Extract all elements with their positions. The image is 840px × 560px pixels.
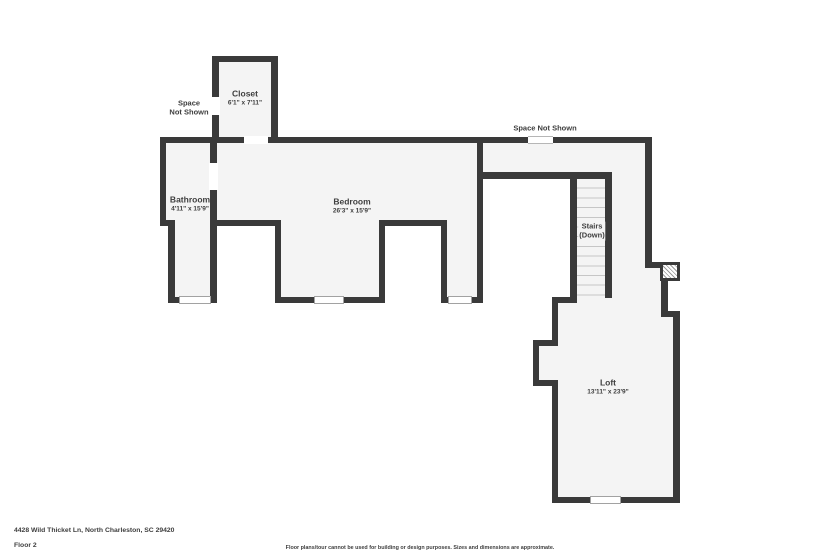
bathroom-alcove-floor	[168, 220, 216, 303]
address-text: 4428 Wild Thicket Ln, North Charleston, …	[14, 527, 174, 534]
wall	[477, 143, 483, 303]
wall	[379, 220, 447, 226]
wall	[441, 220, 447, 303]
stairs-label: Stairs (Down)	[578, 222, 605, 241]
wall	[553, 137, 652, 143]
room-dims: 13'11" x 23'9"	[587, 388, 628, 396]
room-dims: (Down)	[579, 231, 604, 240]
space-not-shown-left-label: Space Not Shown	[169, 99, 208, 118]
room-dims: 4'11" x 15'9"	[170, 205, 210, 213]
wall	[212, 56, 278, 62]
closet-side-opening	[211, 97, 220, 115]
room-name: Bathroom	[170, 195, 210, 206]
bathroom-door-opening	[209, 163, 218, 190]
floor-label: Floor 2	[14, 542, 37, 549]
loft-label: Loft 13'11" x 23'9"	[587, 378, 628, 397]
wall	[210, 143, 217, 163]
loft-floor	[552, 297, 668, 503]
room-name: Closet	[228, 89, 262, 100]
wall	[160, 137, 244, 143]
wall	[212, 56, 219, 101]
wall	[552, 380, 558, 503]
wall	[552, 297, 558, 346]
room-name: Loft	[587, 378, 628, 389]
closet-label: Closet 6'1" x 7'11"	[228, 89, 262, 108]
loft-window	[590, 496, 621, 504]
bedroom-alcove-floor	[275, 220, 385, 303]
wall	[645, 143, 652, 268]
wall	[275, 220, 281, 303]
wall	[673, 311, 680, 503]
wall	[168, 220, 175, 303]
room-name: Bedroom	[333, 197, 371, 208]
closet-door-opening	[244, 136, 268, 144]
wall	[210, 220, 281, 226]
bedroom-window-2	[448, 296, 472, 304]
room-name: Stairs	[579, 222, 604, 231]
wall	[271, 56, 278, 143]
space-not-shown-right-label: Space Not Shown	[513, 123, 576, 132]
bedroom-label: Bedroom 26'3" x 15'9"	[333, 197, 371, 216]
disclaimer-text: Floor plans/tour cannot be used for buil…	[286, 545, 555, 551]
bedroom-window	[314, 296, 344, 304]
space-not-shown-opening	[528, 136, 553, 144]
wall	[160, 137, 166, 226]
floor-plan: Closet 6'1" x 7'11" Space Not Shown Bath…	[0, 0, 840, 560]
room-dims: 26'3" x 15'9"	[333, 207, 371, 215]
bathroom-label: Bathroom 4'11" x 15'9"	[170, 195, 210, 214]
bathroom-window	[179, 296, 211, 304]
room-dims: 6'1" x 7'11"	[228, 99, 262, 107]
wall	[379, 220, 385, 303]
wall	[570, 172, 577, 303]
wall	[605, 172, 612, 298]
wall	[477, 172, 612, 179]
wall	[268, 137, 528, 143]
wall	[210, 190, 217, 303]
